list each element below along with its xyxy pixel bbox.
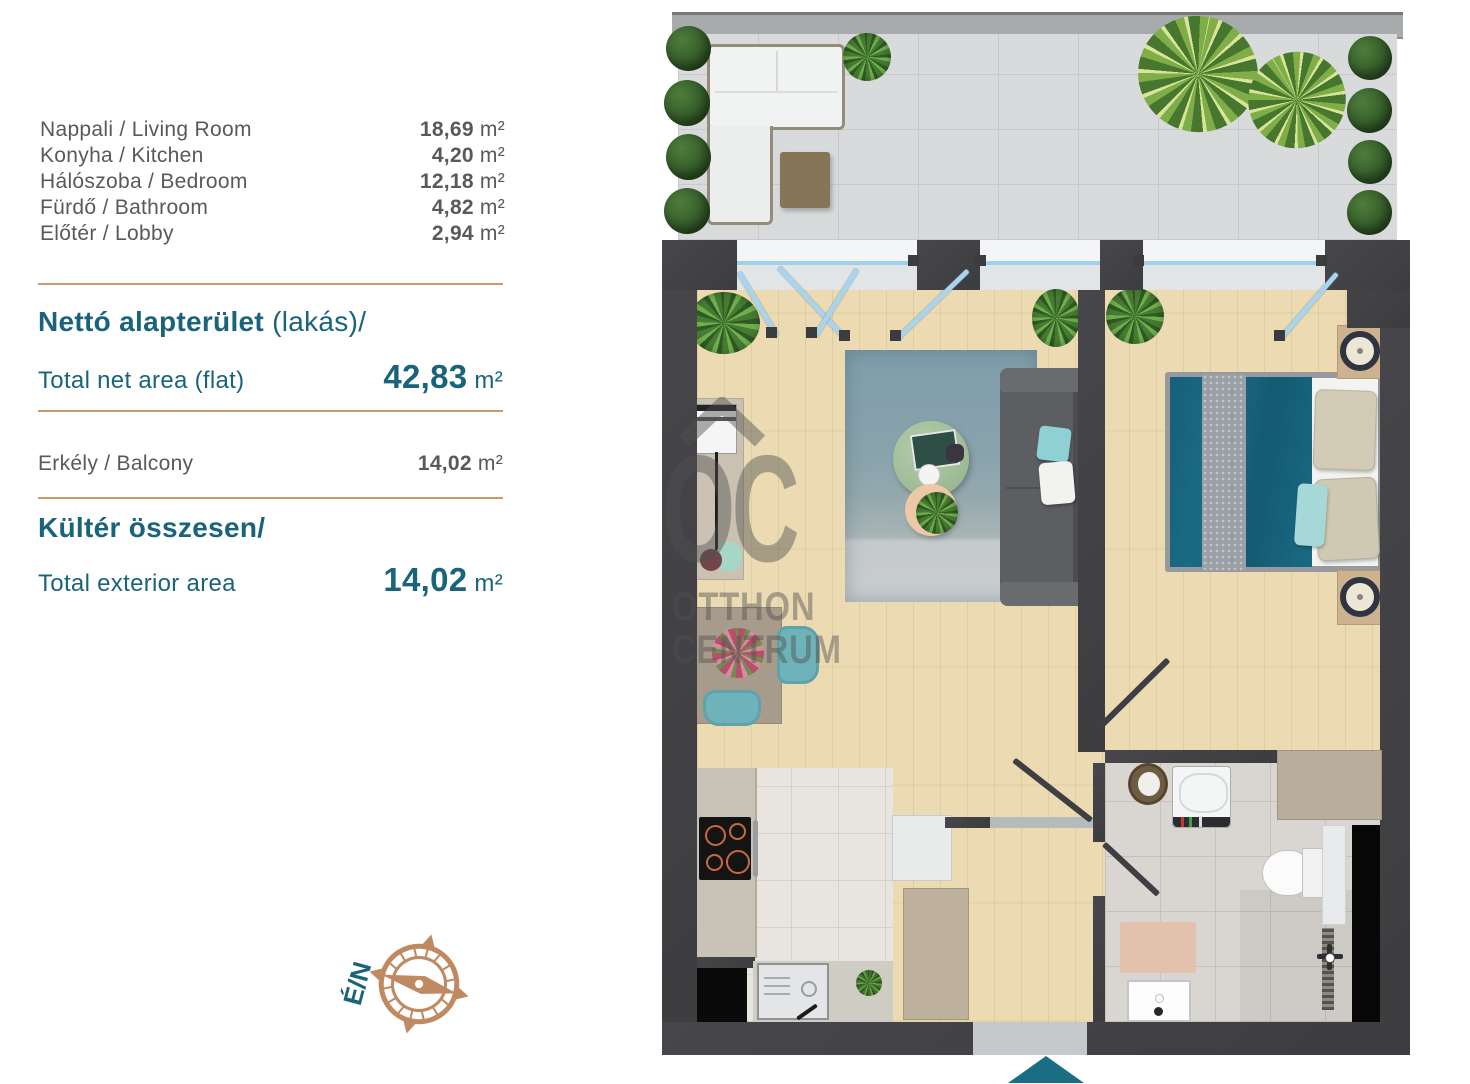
wall-bedroom-bathroom bbox=[1105, 750, 1277, 763]
kitchen-wall-strip bbox=[687, 957, 755, 968]
balcony-bush bbox=[666, 134, 711, 180]
washer-control-panel bbox=[1173, 817, 1230, 827]
wall-living-bedroom-divider bbox=[1078, 290, 1105, 752]
laundry-basket bbox=[1128, 763, 1168, 805]
dining-flowers bbox=[712, 628, 764, 678]
outdoor-sofa-chaise bbox=[707, 126, 773, 225]
casement-end-cap bbox=[766, 327, 777, 338]
casement-end-cap bbox=[839, 330, 850, 341]
lobby-threshold bbox=[990, 817, 1093, 828]
sink-drain bbox=[1155, 994, 1164, 1003]
sink-drain bbox=[801, 981, 817, 997]
bathroom-sink bbox=[1127, 980, 1191, 1022]
living-room-plant bbox=[1032, 289, 1080, 347]
sink-drainboard-line bbox=[764, 993, 790, 995]
basket-towel bbox=[1138, 772, 1160, 796]
bed-pillow bbox=[1313, 389, 1378, 471]
casement-end-cap bbox=[806, 327, 817, 338]
floor-plan: OC OTTHON CENTRUM bbox=[0, 0, 1470, 1084]
window-frame-nub bbox=[1316, 255, 1327, 266]
window-band bbox=[662, 240, 1410, 290]
burner bbox=[705, 825, 726, 846]
sofa-pillow-white bbox=[1038, 461, 1076, 506]
casement-end-cap bbox=[1274, 330, 1285, 341]
balcony-plant bbox=[843, 33, 891, 81]
washer-lid bbox=[1179, 773, 1228, 813]
burner bbox=[729, 823, 746, 840]
bedroom-closet bbox=[1277, 750, 1382, 820]
balcony-bush bbox=[666, 26, 711, 71]
balcony-bush bbox=[664, 80, 710, 126]
wall-lobby bbox=[945, 817, 990, 828]
sink-drainboard-line bbox=[764, 977, 790, 979]
balcony-bush bbox=[1347, 190, 1392, 235]
outdoor-sofa-seat bbox=[707, 44, 845, 130]
bedroom-plant bbox=[1106, 288, 1164, 344]
nightstand-lamp bbox=[1340, 577, 1380, 617]
sink-faucet bbox=[796, 1003, 818, 1020]
kitchen-cooktop bbox=[699, 817, 751, 880]
entrance-threshold bbox=[973, 1022, 1087, 1055]
kitchen-towel-rail bbox=[753, 820, 758, 877]
sink-faucet bbox=[1154, 1007, 1163, 1016]
wall-window-pier bbox=[917, 240, 980, 290]
kitchen-plant bbox=[856, 970, 882, 996]
window-glass bbox=[737, 261, 917, 265]
side-table-plant bbox=[916, 492, 958, 534]
toilet-tank bbox=[1302, 848, 1324, 898]
wall-window-pier bbox=[1325, 240, 1410, 290]
wall-window-pier bbox=[662, 240, 737, 290]
wall-bathroom-west bbox=[1093, 763, 1105, 842]
sink-drainboard-line bbox=[764, 985, 790, 987]
washing-machine bbox=[1172, 766, 1231, 828]
coffee-table-item bbox=[946, 444, 964, 462]
shower-valve bbox=[1325, 953, 1335, 963]
burner bbox=[726, 850, 750, 874]
window-glass bbox=[980, 261, 1100, 265]
bathroom-shelf bbox=[1322, 825, 1346, 925]
balcony-bush bbox=[1348, 36, 1392, 80]
bed-pillow-teal bbox=[1294, 483, 1328, 547]
window-glass bbox=[1143, 261, 1325, 265]
window-frame-nub bbox=[1133, 255, 1144, 266]
nightstand-lamp bbox=[1340, 331, 1380, 371]
lobby-wardrobe bbox=[903, 888, 969, 1020]
balcony-bush bbox=[1347, 88, 1392, 133]
shower-glass-panel bbox=[1352, 825, 1380, 1022]
balcony-bush bbox=[664, 188, 710, 234]
sofa-cushion-split bbox=[776, 51, 778, 91]
coffee-table-cup bbox=[918, 464, 940, 486]
wall-bathroom-west bbox=[1093, 896, 1105, 1022]
entrance-arrow bbox=[1008, 1056, 1084, 1083]
sofa-pillow-teal bbox=[1036, 425, 1072, 463]
console-magazines bbox=[695, 404, 737, 454]
burner bbox=[706, 854, 723, 871]
dining-chair bbox=[703, 690, 761, 726]
outdoor-coffee-table bbox=[780, 152, 830, 208]
wall-left bbox=[662, 240, 697, 1055]
lobby-cabinet-white bbox=[892, 815, 952, 881]
balcony-bush bbox=[1348, 140, 1392, 184]
window-frame-nub bbox=[908, 255, 919, 266]
kitchen-sink bbox=[757, 963, 829, 1020]
console-cup bbox=[700, 549, 722, 571]
living-room-plant bbox=[688, 292, 760, 354]
bed-runner bbox=[1202, 374, 1246, 570]
casement-end-cap bbox=[890, 330, 901, 341]
dining-chair bbox=[777, 626, 819, 684]
wall-right bbox=[1380, 240, 1410, 1055]
floor-plan-page: Nappali / Living Room 18,69m² Konyha / K… bbox=[0, 0, 1470, 1084]
sofa-cushion-line bbox=[714, 91, 838, 93]
bath-mat bbox=[1120, 922, 1196, 973]
window-frame-nub bbox=[975, 255, 986, 266]
